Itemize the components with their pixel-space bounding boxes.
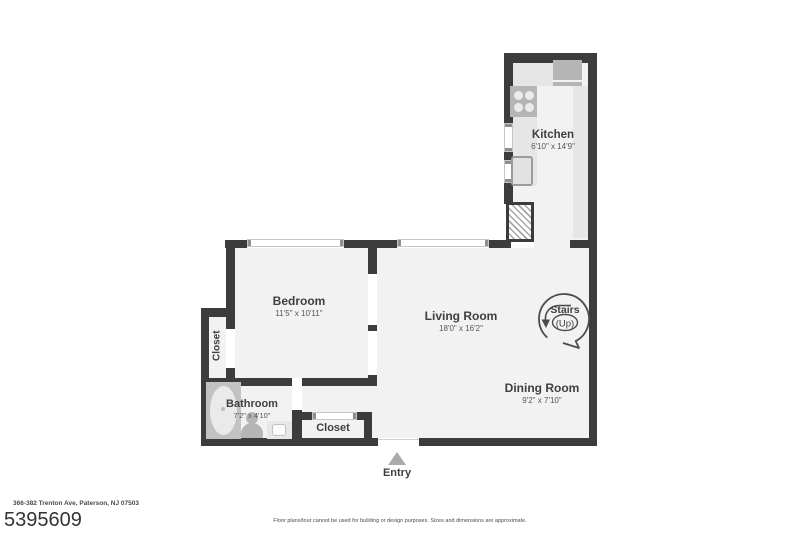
kitchen-label: Kitchen 6'10" x 14'9" [531, 129, 575, 153]
living-room-dims: 18'0" x 16'2" [425, 324, 498, 334]
stove-burner-icon [525, 91, 534, 100]
wall-bottom [201, 438, 378, 446]
bedroom-door-opening [368, 274, 377, 325]
bathroom-name: Bathroom [226, 398, 278, 411]
kitchen-name: Kitchen [531, 129, 575, 142]
living-room-window [397, 239, 489, 247]
wall-top [489, 240, 511, 248]
wall-bedroom-left [226, 240, 235, 317]
wall-closet-right [364, 412, 372, 446]
dining-room-label: Dining Room 9'2" x 7'10" [505, 382, 580, 406]
floor-plan-page: Stairs (Up) Kitchen 6'10" x 14'9" Bedroo… [0, 0, 800, 533]
bedroom-name: Bedroom [273, 295, 326, 309]
kitchen-dims: 6'10" x 14'9" [531, 142, 575, 152]
stove-burner-icon [514, 103, 523, 112]
refrigerator-icon [553, 82, 582, 86]
entry-closet-label: Closet [316, 422, 350, 435]
kitchen-window [504, 123, 513, 152]
wall-closet-top [201, 308, 235, 317]
entry-arrow-icon [388, 452, 406, 465]
bathroom-door-opening [292, 378, 302, 410]
bathtub-drain-icon [221, 407, 225, 411]
bathroom-label: Bathroom 7'2" x 4'10" [226, 398, 278, 420]
disclaimer-text: Floor plans/tour cannot be used for buil… [0, 518, 800, 524]
stove-burner-icon [514, 91, 523, 100]
wall-closet-left [292, 410, 302, 446]
stairs-label: Stairs [550, 304, 579, 316]
chimney-hatch [506, 202, 534, 242]
bedroom-window [247, 239, 344, 247]
wall-bedroom-right [368, 375, 377, 386]
refrigerator-icon [553, 60, 582, 80]
closet-left-label: Closet [203, 320, 231, 372]
living-room-label: Living Room 18'0" x 16'2" [425, 310, 498, 334]
closet-door-opening [312, 412, 357, 420]
living-room-name: Living Room [425, 310, 498, 324]
stove-burner-icon [525, 103, 534, 112]
hallway-floor [302, 386, 372, 414]
wall-bottom [419, 438, 597, 446]
property-address: 366-382 Trenton Ave, Paterson, NJ 07503 [13, 500, 139, 507]
bedroom-dims: 11'5" x 10'11" [273, 309, 326, 319]
bathroom-dims: 7'2" x 4'10" [226, 411, 278, 421]
entry-closet-name: Closet [316, 422, 350, 435]
pedestal-sink-icon [241, 423, 263, 438]
kitchen-sink-icon [511, 156, 533, 186]
bedroom-door-opening [368, 331, 377, 375]
wall-kitchen-top [504, 53, 597, 63]
toilet-icon [272, 424, 286, 436]
wall-kitchen-left [504, 183, 513, 204]
entry-text: Entry [383, 467, 411, 480]
wall-closet-top [302, 412, 312, 420]
wall-kitchen-right [588, 53, 597, 248]
dining-room-dims: 9'2" x 7'10" [505, 396, 580, 406]
bedroom-label: Bedroom 11'5" x 10'11" [273, 295, 326, 319]
wall-bedroom-right [368, 240, 377, 274]
stairs-icon: Stairs (Up) [533, 291, 599, 353]
stairs-up-label: (Up) [556, 319, 574, 330]
entry-label: Entry [383, 467, 411, 480]
stove-icon [510, 86, 537, 117]
dining-room-name: Dining Room [505, 382, 580, 396]
entry-threshold [378, 439, 419, 440]
kitchen-counter [513, 63, 553, 86]
kitchen-counter [573, 86, 588, 238]
wall-bedroom-bottom [302, 378, 374, 386]
